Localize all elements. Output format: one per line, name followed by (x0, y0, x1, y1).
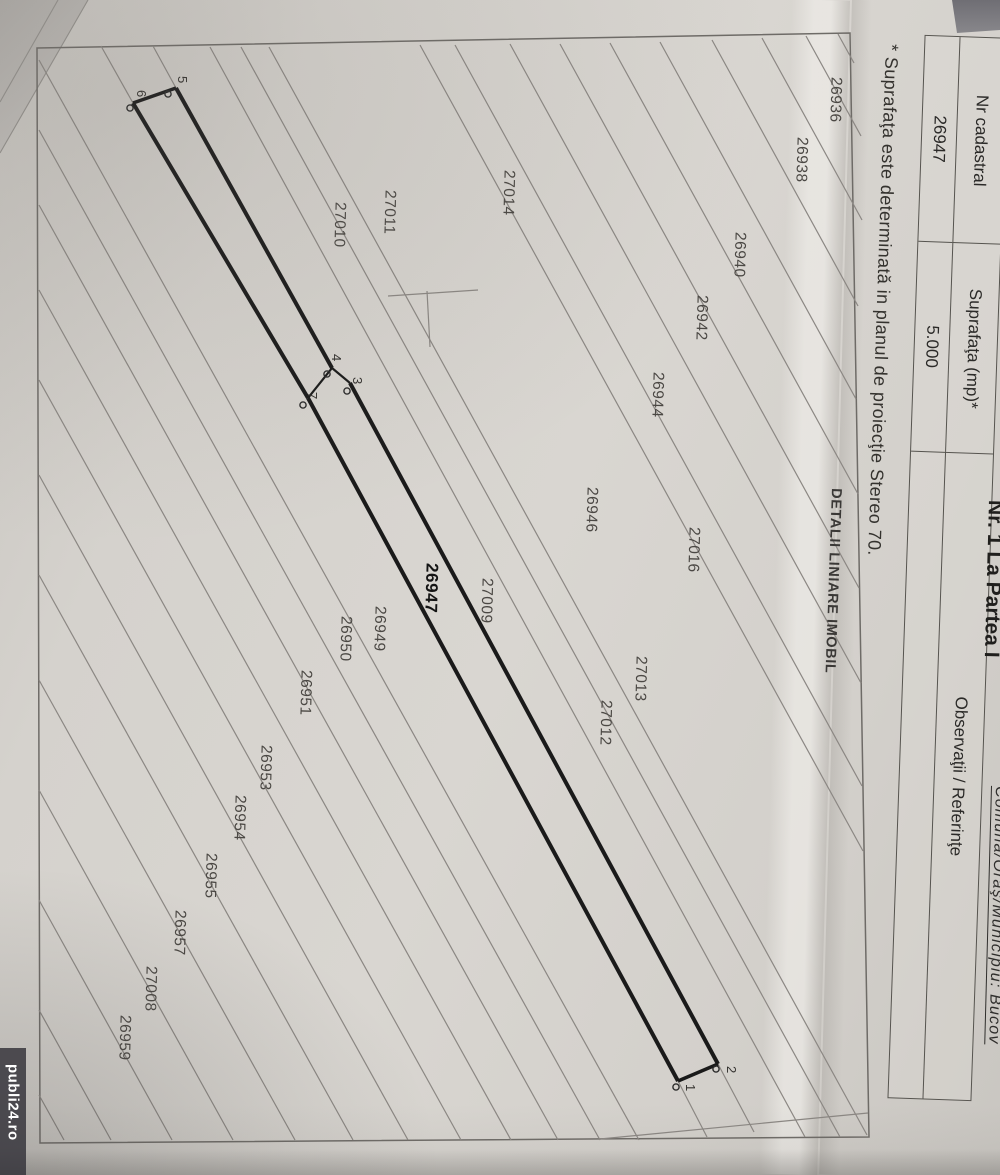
nr-cadastral-value-text: 26947 (928, 115, 950, 163)
page-part-title: Nr. 1 La Partea I (977, 500, 1000, 658)
vertex-labels-layer: 5643712 (0, 0, 1000, 1175)
vertex-label: 1 (683, 1084, 698, 1091)
vertex-label: 4 (329, 354, 344, 361)
watermark-bar: publi24.ro (0, 1048, 26, 1175)
vertex-label: 5 (175, 76, 190, 83)
vertex-label: 6 (134, 90, 149, 97)
observatii-header-text: Observaţii / Referinţe (945, 696, 971, 856)
vertex-label: 7 (305, 392, 320, 399)
photo-bottom-shadow (0, 1149, 1000, 1175)
watermark-text: publi24.ro (5, 1064, 22, 1141)
suprafata-value-text: 5.000 (921, 325, 942, 368)
cadastral-document-photo: 2693626938269402694226944270142701127010… (0, 0, 1000, 1175)
vertex-label: 2 (724, 1066, 739, 1073)
suprafata-header-text: Suprafaţa (mp)* (961, 288, 985, 409)
suprafata-header: Suprafaţa (mp)* (945, 242, 1000, 454)
nr-cadastral-header-text: Nr cadastral (969, 94, 992, 186)
nr-cadastral-header: Nr cadastral (952, 37, 1000, 244)
vertex-label: 3 (350, 377, 365, 384)
